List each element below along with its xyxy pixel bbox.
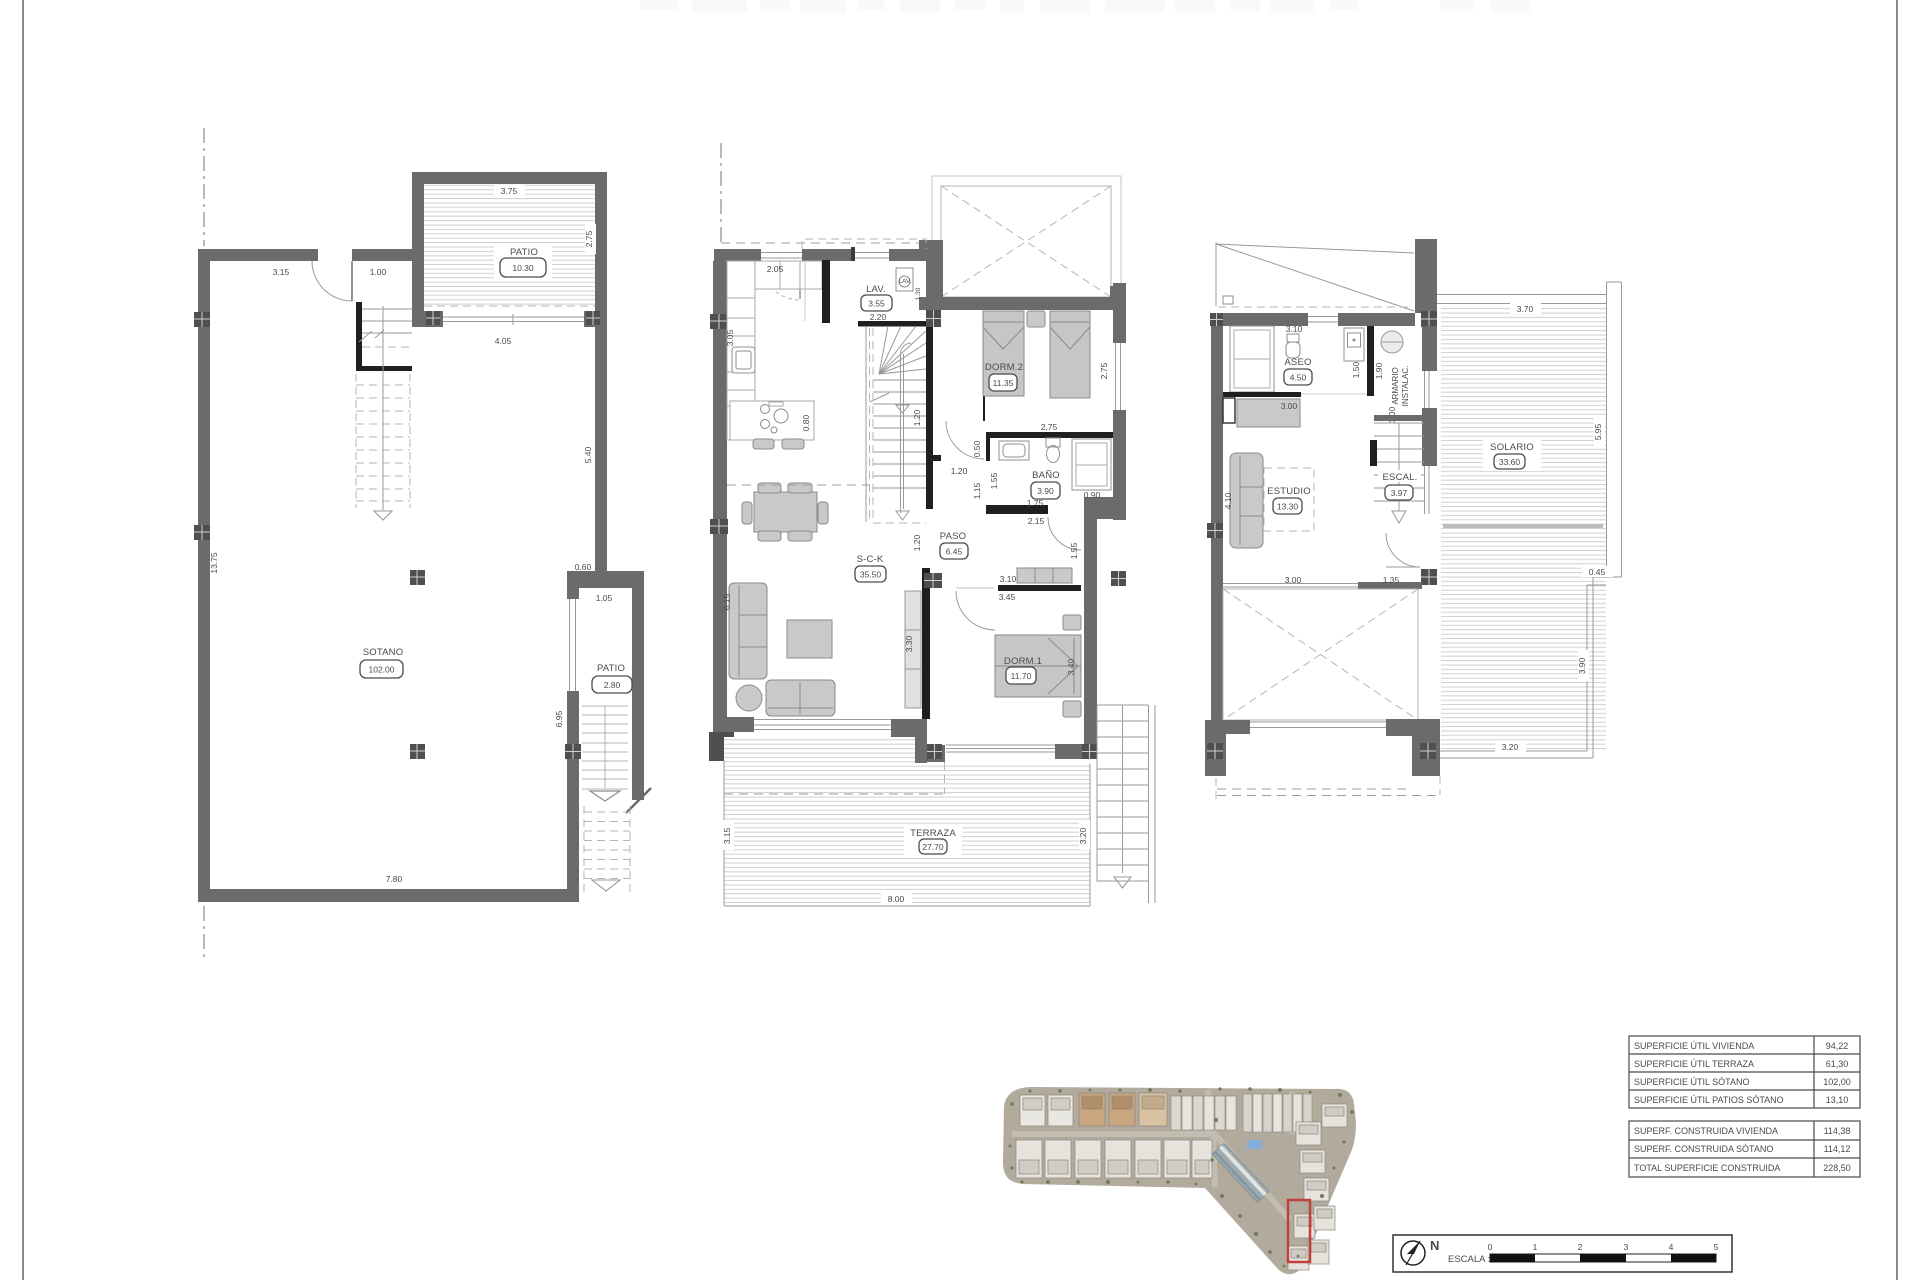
svg-text:13.30: 13.30 — [1277, 502, 1299, 512]
svg-text:1: 1 — [1533, 1242, 1538, 1252]
svg-text:3.20: 3.20 — [1502, 742, 1519, 752]
svg-text:INSTALAC.: INSTALAC. — [1401, 366, 1410, 407]
svg-text:ARMARIO: ARMARIO — [1391, 367, 1400, 404]
svg-text:SUPERFICIE ÚTIL TERRAZA: SUPERFICIE ÚTIL TERRAZA — [1634, 1059, 1754, 1069]
svg-text:6.45: 6.45 — [946, 547, 963, 557]
svg-text:LAV.: LAV. — [866, 284, 886, 295]
svg-text:1.90: 1.90 — [1374, 362, 1384, 379]
svg-text:2.80: 2.80 — [604, 680, 621, 690]
svg-text:7.80: 7.80 — [386, 874, 403, 884]
svg-text:102.00: 102.00 — [369, 665, 395, 675]
svg-text:4: 4 — [1669, 1242, 1674, 1252]
svg-text:PASO: PASO — [940, 531, 967, 542]
svg-text:SUPERF. CONSTRUIDA SÓTANO: SUPERF. CONSTRUIDA SÓTANO — [1634, 1144, 1773, 1154]
svg-text:0.45: 0.45 — [1589, 567, 1606, 577]
svg-text:3.70: 3.70 — [1517, 304, 1534, 314]
svg-text:1.05: 1.05 — [596, 593, 613, 603]
svg-text:SUPERFICIE ÚTIL VIVIENDA: SUPERFICIE ÚTIL VIVIENDA — [1634, 1041, 1754, 1051]
svg-text:TERRAZA: TERRAZA — [910, 828, 956, 839]
svg-text:3.15: 3.15 — [273, 267, 290, 277]
svg-text:3.55: 3.55 — [868, 299, 885, 309]
svg-text:5: 5 — [1714, 1242, 1719, 1252]
svg-text:3.45: 3.45 — [999, 592, 1016, 602]
svg-text:1.20: 1.20 — [951, 466, 968, 476]
svg-text:228,50: 228,50 — [1823, 1163, 1851, 1173]
svg-text:1.15: 1.15 — [972, 482, 982, 499]
svg-text:1.55: 1.55 — [989, 472, 999, 489]
svg-text:1.55: 1.55 — [1069, 542, 1079, 559]
svg-text:3.90: 3.90 — [1577, 657, 1587, 674]
svg-text:0: 0 — [1488, 1242, 1493, 1252]
svg-text:94,22: 94,22 — [1826, 1041, 1849, 1051]
svg-text:3.20: 3.20 — [1078, 827, 1088, 844]
svg-text:1.20: 1.20 — [912, 409, 922, 426]
svg-text:11.70: 11.70 — [1011, 671, 1032, 681]
svg-text:2.20: 2.20 — [870, 312, 887, 322]
svg-text:1.50: 1.50 — [1351, 361, 1361, 378]
svg-text:DORM.2: DORM.2 — [985, 362, 1023, 373]
svg-text:2: 2 — [1578, 1242, 1583, 1252]
svg-text:SUPERFICIE ÚTIL PATIOS SÓTANO: SUPERFICIE ÚTIL PATIOS SÓTANO — [1634, 1095, 1784, 1105]
svg-text:2.75: 2.75 — [1041, 422, 1058, 432]
svg-text:ESCAL.: ESCAL. — [1383, 472, 1418, 483]
svg-text:BAÑO: BAÑO — [1032, 470, 1060, 481]
svg-text:PATIO: PATIO — [597, 663, 625, 674]
svg-text:SOLARIO: SOLARIO — [1490, 442, 1534, 453]
svg-text:PATIO: PATIO — [510, 247, 538, 258]
svg-text:35.50: 35.50 — [860, 570, 882, 580]
svg-text:1.35: 1.35 — [1383, 575, 1400, 585]
svg-text:TOTAL SUPERFICIE CONSTRUIDA: TOTAL SUPERFICIE CONSTRUIDA — [1634, 1163, 1780, 1173]
svg-text:61,30: 61,30 — [1826, 1059, 1849, 1069]
svg-text:DORM.1: DORM.1 — [1004, 656, 1042, 667]
svg-text:102,00: 102,00 — [1823, 1077, 1851, 1087]
svg-text:114,38: 114,38 — [1824, 1126, 1851, 1136]
svg-text:5.95: 5.95 — [1593, 423, 1603, 440]
svg-text:ASEO: ASEO — [1284, 357, 1311, 368]
svg-text:3.75: 3.75 — [501, 186, 518, 196]
svg-text:11.35: 11.35 — [993, 378, 1014, 388]
svg-text:SUPERFICIE ÚTIL SÓTANO: SUPERFICIE ÚTIL SÓTANO — [1634, 1077, 1750, 1087]
svg-text:0.80: 0.80 — [801, 414, 811, 431]
svg-text:13,10: 13,10 — [1826, 1095, 1849, 1105]
svg-text:3.30: 3.30 — [904, 635, 914, 652]
svg-text:3.97: 3.97 — [1391, 488, 1408, 498]
svg-text:4.10: 4.10 — [1223, 492, 1233, 509]
svg-text:N: N — [1430, 1238, 1439, 1253]
svg-text:1.00: 1.00 — [370, 267, 387, 277]
svg-text:3.00: 3.00 — [1281, 401, 1298, 411]
svg-text:6.95: 6.95 — [554, 710, 564, 727]
svg-text:SOTANO: SOTANO — [363, 647, 404, 658]
svg-text:3.05: 3.05 — [725, 329, 735, 346]
svg-text:3.90: 3.90 — [1037, 486, 1054, 496]
svg-text:13.75: 13.75 — [209, 552, 219, 574]
svg-text:8.00: 8.00 — [888, 894, 905, 904]
svg-text:27.70: 27.70 — [922, 842, 944, 852]
svg-text:3.10: 3.10 — [1000, 574, 1017, 584]
svg-text:0.90: 0.90 — [1084, 490, 1101, 500]
svg-text:1.75: 1.75 — [1027, 498, 1044, 508]
svg-text:SUPERF. CONSTRUIDA VIVIENDA: SUPERF. CONSTRUIDA VIVIENDA — [1634, 1126, 1778, 1136]
svg-text:2.75: 2.75 — [584, 230, 594, 247]
svg-text:114,12: 114,12 — [1824, 1144, 1851, 1154]
svg-text:10.30: 10.30 — [512, 263, 534, 273]
svg-text:1.30: 1.30 — [915, 287, 922, 300]
svg-text:4.50: 4.50 — [1290, 373, 1307, 383]
svg-text:0.50: 0.50 — [972, 440, 982, 457]
svg-text:4.05: 4.05 — [495, 336, 512, 346]
svg-text:3.15: 3.15 — [722, 827, 732, 844]
svg-text:1.20: 1.20 — [912, 534, 922, 551]
svg-text:ESCALA :: ESCALA : — [1448, 1254, 1490, 1265]
svg-text:S-C-K: S-C-K — [857, 554, 884, 565]
svg-text:3.40: 3.40 — [1066, 658, 1076, 675]
svg-text:LAV.: LAV. — [898, 278, 911, 285]
svg-text:2.75: 2.75 — [1099, 362, 1109, 379]
svg-text:33.60: 33.60 — [1499, 457, 1521, 467]
svg-text:2.05: 2.05 — [767, 264, 784, 274]
svg-text:2.15: 2.15 — [1028, 516, 1045, 526]
svg-text:5.40: 5.40 — [583, 446, 593, 463]
svg-text:0.60: 0.60 — [575, 562, 592, 572]
svg-text:3.10: 3.10 — [1286, 324, 1303, 334]
svg-text:ESTUDIO: ESTUDIO — [1267, 486, 1311, 497]
svg-text:3: 3 — [1624, 1242, 1629, 1252]
svg-text:6.15: 6.15 — [722, 593, 732, 610]
